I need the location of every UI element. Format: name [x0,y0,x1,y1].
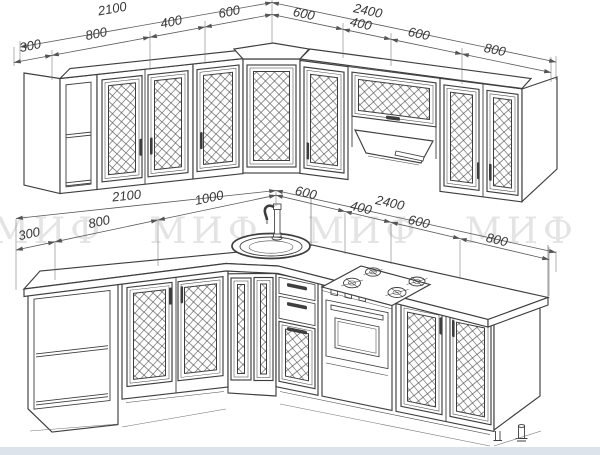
lattice-door [127,282,172,386]
lattice-glass [238,285,245,374]
lattice-glass [408,312,436,407]
lattice-door [197,65,239,172]
lattice-glass [311,74,338,165]
lattice-glass [185,284,217,374]
lattice-door [254,278,273,381]
corner-wall-cabinet [243,59,300,173]
footer-band [0,447,600,455]
lattice-glass [261,284,267,374]
drawing-canvas: МИФ МИФ МИФ МИФ МИФ [0,0,600,455]
door-handle [477,162,480,179]
kitchen-technical-drawing: МИФ МИФ МИФ МИФ МИФ [0,0,600,455]
lattice-glass [204,72,233,164]
door-handle [489,164,492,181]
lattice-door [450,314,491,424]
door-handle [200,132,203,149]
lattice-glass [134,290,166,380]
lattice-glass [254,72,290,161]
sink [232,234,310,259]
lattice-door [247,65,296,167]
lattice-door [231,278,251,380]
lattice-door [444,85,479,190]
lattice-door [148,71,188,177]
lattice-glass [451,92,473,183]
upper-left-side-panel [24,73,60,194]
door-handle [140,139,143,156]
lattice-glass [494,98,512,188]
door-handle [452,320,455,338]
lattice-door [178,277,223,381]
open-shelf-unit-base [28,283,118,435]
corner-sink-base [228,273,276,396]
door-handle [307,142,310,159]
door-handle [150,137,153,154]
lattice-door [102,76,142,182]
lattice-door [304,67,344,173]
lattice-door [487,90,518,195]
lattice-door [401,304,442,414]
lattice-glass [457,322,485,417]
dim-lower-overall-left: 2100 [110,186,142,204]
upper-run-left [60,59,243,194]
lattice-glass [109,83,136,175]
door-handle [440,317,443,335]
door-handle [181,286,184,303]
lattice-glass [286,329,309,381]
door-handle [169,287,172,304]
lattice-glass [155,78,182,170]
